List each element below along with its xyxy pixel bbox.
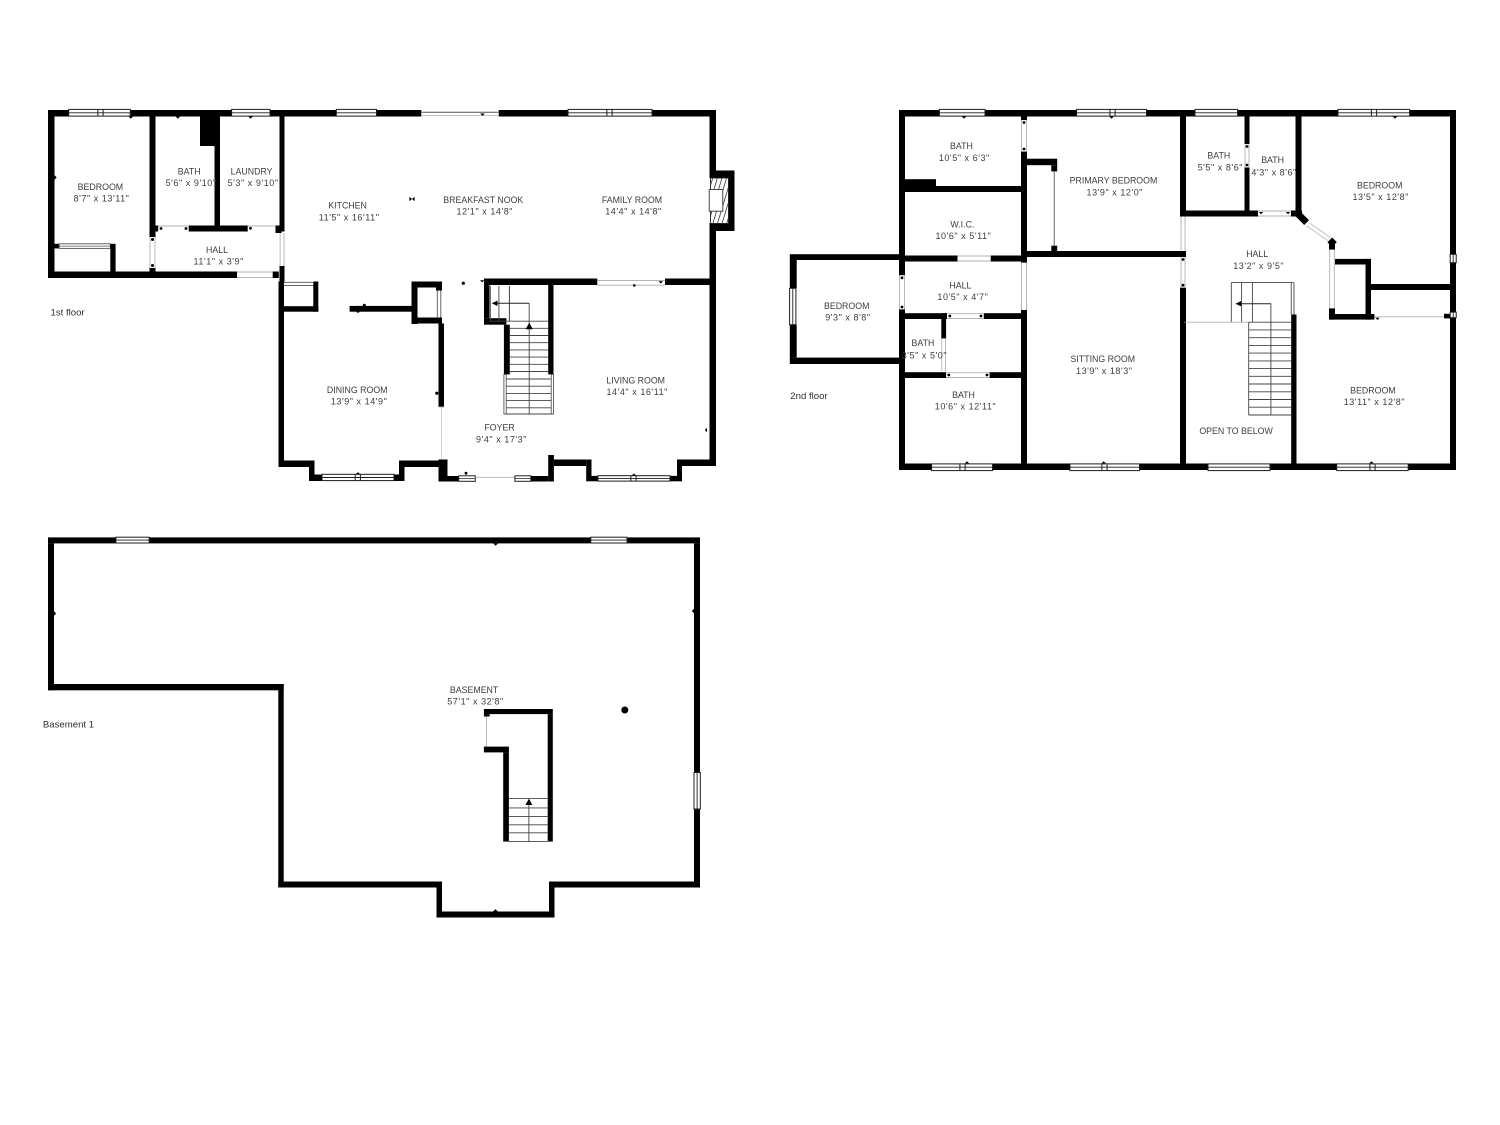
svg-text:BEDROOM: BEDROOM bbox=[78, 182, 123, 192]
svg-text:KITCHEN: KITCHEN bbox=[328, 201, 367, 211]
svg-text:11'5" x 16'11": 11'5" x 16'11" bbox=[319, 212, 380, 222]
svg-text:BREAKFAST NOOK: BREAKFAST NOOK bbox=[443, 195, 523, 205]
svg-text:10'5" x 4'7": 10'5" x 4'7" bbox=[937, 292, 988, 302]
svg-text:BEDROOM: BEDROOM bbox=[1357, 181, 1402, 191]
svg-text:5'3" x 9'10": 5'3" x 9'10" bbox=[228, 178, 279, 188]
svg-text:14'4" x 16'11": 14'4" x 16'11" bbox=[606, 387, 667, 397]
svg-text:BEDROOM: BEDROOM bbox=[1350, 386, 1395, 396]
svg-text:HALL: HALL bbox=[949, 280, 971, 290]
svg-text:13'2" x 9'5": 13'2" x 9'5" bbox=[1233, 261, 1284, 271]
svg-text:BATH: BATH bbox=[1261, 155, 1284, 165]
svg-text:SITTING ROOM: SITTING ROOM bbox=[1071, 354, 1136, 364]
svg-text:BATH: BATH bbox=[952, 390, 975, 400]
svg-text:2nd floor: 2nd floor bbox=[790, 391, 828, 402]
svg-text:FAMILY ROOM: FAMILY ROOM bbox=[602, 195, 662, 205]
svg-text:10'5" x 6'3": 10'5" x 6'3" bbox=[939, 153, 990, 163]
svg-text:BEDROOM: BEDROOM bbox=[824, 301, 869, 311]
svg-text:5'6" x 9'10": 5'6" x 9'10" bbox=[166, 178, 217, 188]
svg-text:5'5" x 8'6": 5'5" x 8'6" bbox=[1198, 163, 1243, 173]
svg-text:BATH: BATH bbox=[1207, 150, 1230, 160]
svg-text:1st floor: 1st floor bbox=[51, 308, 86, 319]
svg-text:OPEN TO BELOW: OPEN TO BELOW bbox=[1199, 426, 1273, 436]
svg-text:11'1" x 3'9": 11'1" x 3'9" bbox=[194, 256, 244, 266]
svg-text:13'9" x 12'0": 13'9" x 12'0" bbox=[1087, 187, 1144, 197]
svg-text:DINING ROOM: DINING ROOM bbox=[327, 385, 388, 395]
svg-text:PRIMARY BEDROOM: PRIMARY BEDROOM bbox=[1070, 176, 1158, 186]
svg-text:LAUNDRY: LAUNDRY bbox=[231, 167, 273, 177]
svg-text:BATH: BATH bbox=[950, 141, 973, 151]
svg-text:13'11" x 12'8": 13'11" x 12'8" bbox=[1344, 397, 1405, 407]
svg-text:12'1" x 14'8": 12'1" x 14'8" bbox=[457, 207, 514, 217]
svg-text:9'3" x 8'8": 9'3" x 8'8" bbox=[825, 313, 870, 323]
svg-text:BATH: BATH bbox=[178, 167, 201, 177]
svg-text:BASEMENT: BASEMENT bbox=[450, 685, 499, 695]
svg-text:LIVING ROOM: LIVING ROOM bbox=[606, 376, 665, 386]
svg-text:4'3" x 8'6": 4'3" x 8'6" bbox=[1251, 168, 1296, 178]
svg-text:3'5" x 5'0": 3'5" x 5'0" bbox=[902, 350, 947, 360]
svg-text:10'6" x 5'11": 10'6" x 5'11" bbox=[935, 231, 991, 241]
svg-text:Basement 1: Basement 1 bbox=[43, 720, 94, 731]
svg-text:13'9" x 14'9": 13'9" x 14'9" bbox=[331, 397, 388, 407]
svg-text:13'9" x 18'3": 13'9" x 18'3" bbox=[1076, 366, 1133, 376]
svg-text:57'1" x 32'8": 57'1" x 32'8" bbox=[447, 696, 504, 706]
svg-text:10'6" x 12'11": 10'6" x 12'11" bbox=[935, 402, 996, 412]
svg-text:9'4" x 17'3": 9'4" x 17'3" bbox=[476, 434, 527, 444]
svg-text:14'4" x 14'8": 14'4" x 14'8" bbox=[605, 207, 662, 217]
svg-text:HALL: HALL bbox=[206, 245, 228, 255]
svg-text:13'5" x 12'8": 13'5" x 12'8" bbox=[1352, 192, 1409, 202]
svg-text:FOYER: FOYER bbox=[484, 423, 514, 433]
svg-text:8'7" x 13'11": 8'7" x 13'11" bbox=[74, 194, 130, 204]
svg-text:W.I.C.: W.I.C. bbox=[950, 220, 974, 230]
svg-text:BATH: BATH bbox=[911, 338, 934, 348]
svg-text:HALL: HALL bbox=[1246, 249, 1268, 259]
